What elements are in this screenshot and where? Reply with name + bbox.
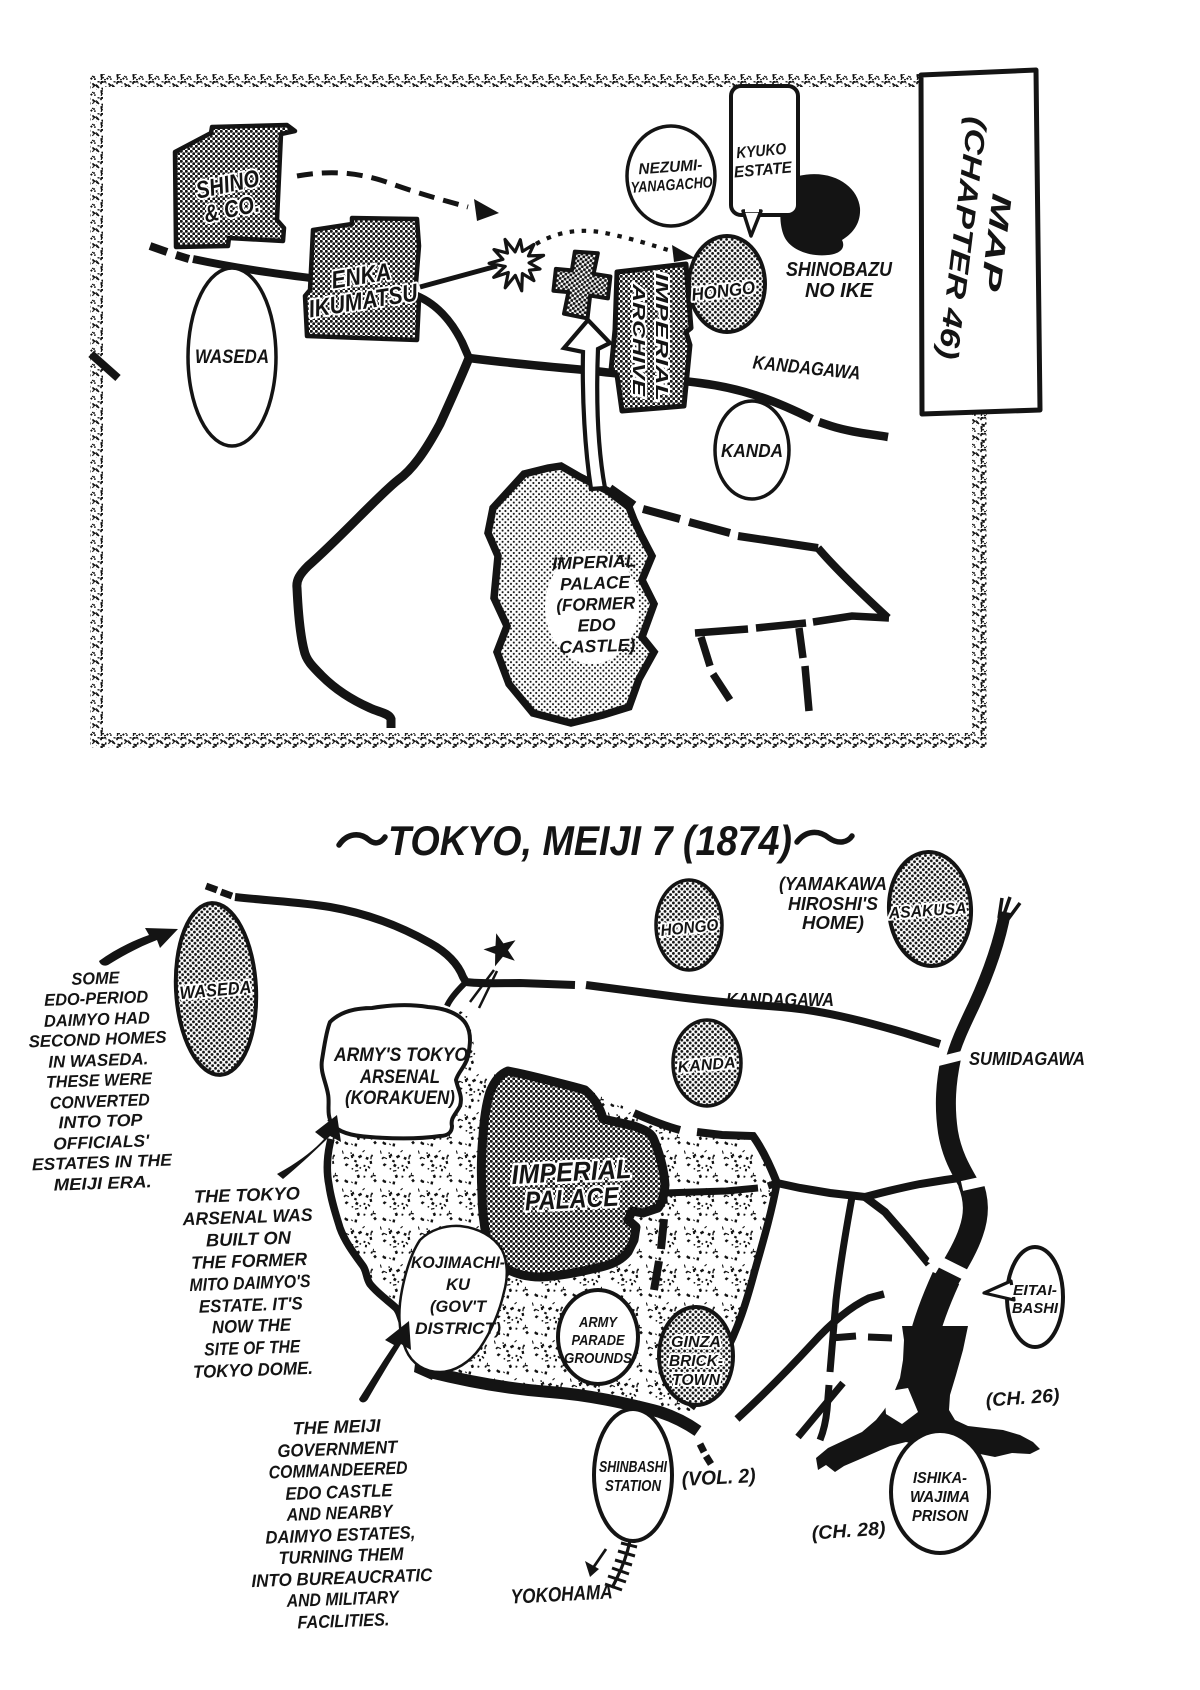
- svg-text:KANDA: KANDA: [721, 441, 783, 461]
- svg-text:PALACE: PALACE: [560, 572, 632, 594]
- svg-text:DISTRICT): DISTRICT): [415, 1320, 502, 1338]
- svg-text:(KORAKUEN): (KORAKUEN): [345, 1088, 455, 1109]
- svg-text:ISHIKA-: ISHIKA-: [913, 1470, 967, 1487]
- svg-text:TOKYO DOME.: TOKYO DOME.: [193, 1358, 314, 1382]
- svg-text:THE FORMER: THE FORMER: [191, 1249, 308, 1273]
- svg-text:FACILITIES.: FACILITIES.: [297, 1609, 390, 1632]
- svg-text:GOVERNMENT: GOVERNMENT: [277, 1437, 399, 1461]
- svg-text:(YAMAKAWA: (YAMAKAWA: [779, 874, 887, 894]
- svg-text:ARSENAL: ARSENAL: [359, 1067, 440, 1088]
- svg-text:THE TOKYO: THE TOKYO: [194, 1183, 301, 1207]
- svg-text:EITAI-: EITAI-: [1013, 1282, 1057, 1299]
- svg-text:TOWN: TOWN: [672, 1372, 721, 1389]
- svg-text:CASTLE): CASTLE): [559, 635, 636, 658]
- svg-text:SHINOBAZU: SHINOBAZU: [786, 258, 893, 281]
- svg-text:SHINBASHI: SHINBASHI: [599, 1459, 668, 1476]
- svg-text:BRICK-: BRICK-: [669, 1353, 723, 1370]
- svg-text:OFFICIALS': OFFICIALS': [53, 1131, 151, 1153]
- svg-text:EDO-PERIOD: EDO-PERIOD: [44, 987, 149, 1010]
- svg-text:(FORMER: (FORMER: [556, 593, 636, 616]
- svg-text:BASHI: BASHI: [1012, 1300, 1059, 1317]
- svg-text:KU: KU: [446, 1276, 471, 1294]
- svg-text:GINZA: GINZA: [671, 1334, 721, 1351]
- svg-text:HOME): HOME): [802, 913, 864, 933]
- svg-text:HIROSHI'S: HIROSHI'S: [788, 894, 878, 914]
- svg-text:MEIJI ERA.: MEIJI ERA.: [53, 1172, 152, 1194]
- svg-text:CONVERTED: CONVERTED: [49, 1090, 150, 1112]
- svg-text:NOW THE: NOW THE: [212, 1315, 293, 1338]
- svg-text:IMPERIAL: IMPERIAL: [552, 551, 637, 574]
- svg-text:PRISON: PRISON: [912, 1508, 969, 1525]
- svg-text:BUILT ON: BUILT ON: [206, 1228, 293, 1251]
- svg-text:KOJIMACHI-: KOJIMACHI-: [411, 1254, 505, 1272]
- svg-text:SOME: SOME: [71, 968, 120, 989]
- svg-text:SITE OF THE: SITE OF THE: [204, 1336, 301, 1359]
- svg-text:INTO TOP: INTO TOP: [58, 1110, 143, 1132]
- svg-text:STATION: STATION: [605, 1478, 662, 1495]
- svg-text:ARMY'S TOKYO: ARMY'S TOKYO: [333, 1045, 468, 1066]
- svg-text:TOKYO, MEIJI 7 (1874): TOKYO, MEIJI 7 (1874): [388, 817, 792, 864]
- svg-text:PALACE: PALACE: [524, 1182, 620, 1217]
- svg-text:ESTATE. IT'S: ESTATE. IT'S: [198, 1293, 303, 1317]
- svg-text:IN WASEDA.: IN WASEDA.: [48, 1049, 149, 1071]
- svg-text:IMPERIAL: IMPERIAL: [652, 273, 672, 401]
- svg-text:DAIMYO HAD: DAIMYO HAD: [44, 1008, 151, 1031]
- svg-text:EDO CASTLE: EDO CASTLE: [285, 1480, 394, 1504]
- svg-text:ARCHIVE: ARCHIVE: [629, 283, 649, 398]
- svg-text:ARMY: ARMY: [578, 1314, 619, 1331]
- svg-text:AND NEARBY: AND NEARBY: [285, 1501, 394, 1525]
- svg-text:GROUNDS: GROUNDS: [564, 1350, 632, 1367]
- svg-text:WASEDA: WASEDA: [195, 347, 269, 368]
- svg-text:AND MILITARY: AND MILITARY: [285, 1587, 400, 1611]
- svg-text:(GOV'T: (GOV'T: [430, 1298, 488, 1316]
- svg-text:(VOL. 2): (VOL. 2): [681, 1465, 756, 1491]
- svg-text:EDO: EDO: [577, 614, 616, 635]
- svg-text:THESE WERE: THESE WERE: [46, 1069, 153, 1092]
- svg-text:THE MEIJI: THE MEIJI: [292, 1415, 382, 1438]
- svg-text:NO IKE: NO IKE: [805, 279, 874, 302]
- svg-text:WAJIMA: WAJIMA: [910, 1489, 970, 1506]
- svg-text:MITO DAIMYO'S: MITO DAIMYO'S: [189, 1271, 311, 1295]
- svg-text:KANDAGAWA: KANDAGAWA: [726, 989, 834, 1010]
- svg-text:PARADE: PARADE: [572, 1332, 626, 1349]
- svg-text:SUMIDAGAWA: SUMIDAGAWA: [969, 1048, 1085, 1069]
